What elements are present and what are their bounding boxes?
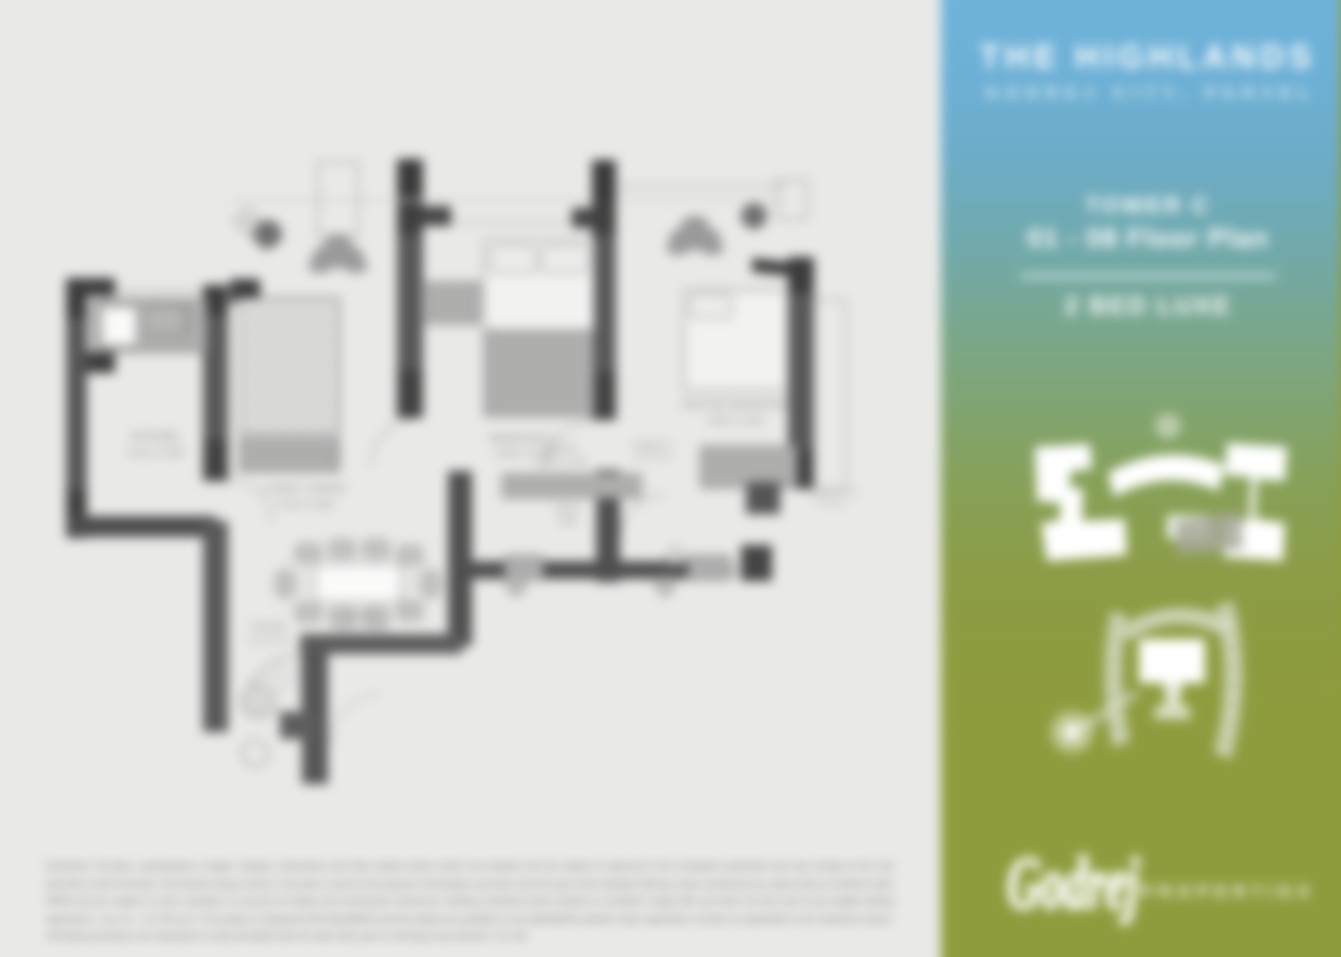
svg-text:MASTER BEDROOM: MASTER BEDROOM <box>682 399 788 411</box>
svg-text:1.50 X 2.40: 1.50 X 2.40 <box>534 457 586 468</box>
svg-text:PASS.: PASS. <box>555 504 581 514</box>
svg-text:PROPERTIES: PROPERTIES <box>1141 882 1316 901</box>
svg-text:TOILET: TOILET <box>543 444 578 455</box>
svg-text:FOYER: FOYER <box>251 622 285 633</box>
svg-text:KITCHEN: KITCHEN <box>131 431 179 443</box>
svg-text:6.10 X 3.66: 6.10 X 3.66 <box>277 499 333 511</box>
svg-text:1.4 X 2.2: 1.4 X 2.2 <box>634 451 670 461</box>
svg-text:Godrej: Godrej <box>1007 843 1139 925</box>
svg-text:AGE: AGE <box>558 516 577 526</box>
svg-text:2.41 X 3.05: 2.41 X 3.05 <box>127 447 183 459</box>
svg-text:LIVING / DINING: LIVING / DINING <box>263 483 347 495</box>
svg-text:1.2 X 1.5: 1.2 X 1.5 <box>248 635 288 646</box>
svg-text:2.44 X 3.05: 2.44 X 3.05 <box>334 623 386 634</box>
svg-text:3.66 X 3.05: 3.66 X 3.05 <box>707 415 763 427</box>
svg-text:TOILET 2: TOILET 2 <box>633 440 672 450</box>
svg-text:DINING: DINING <box>343 610 378 621</box>
